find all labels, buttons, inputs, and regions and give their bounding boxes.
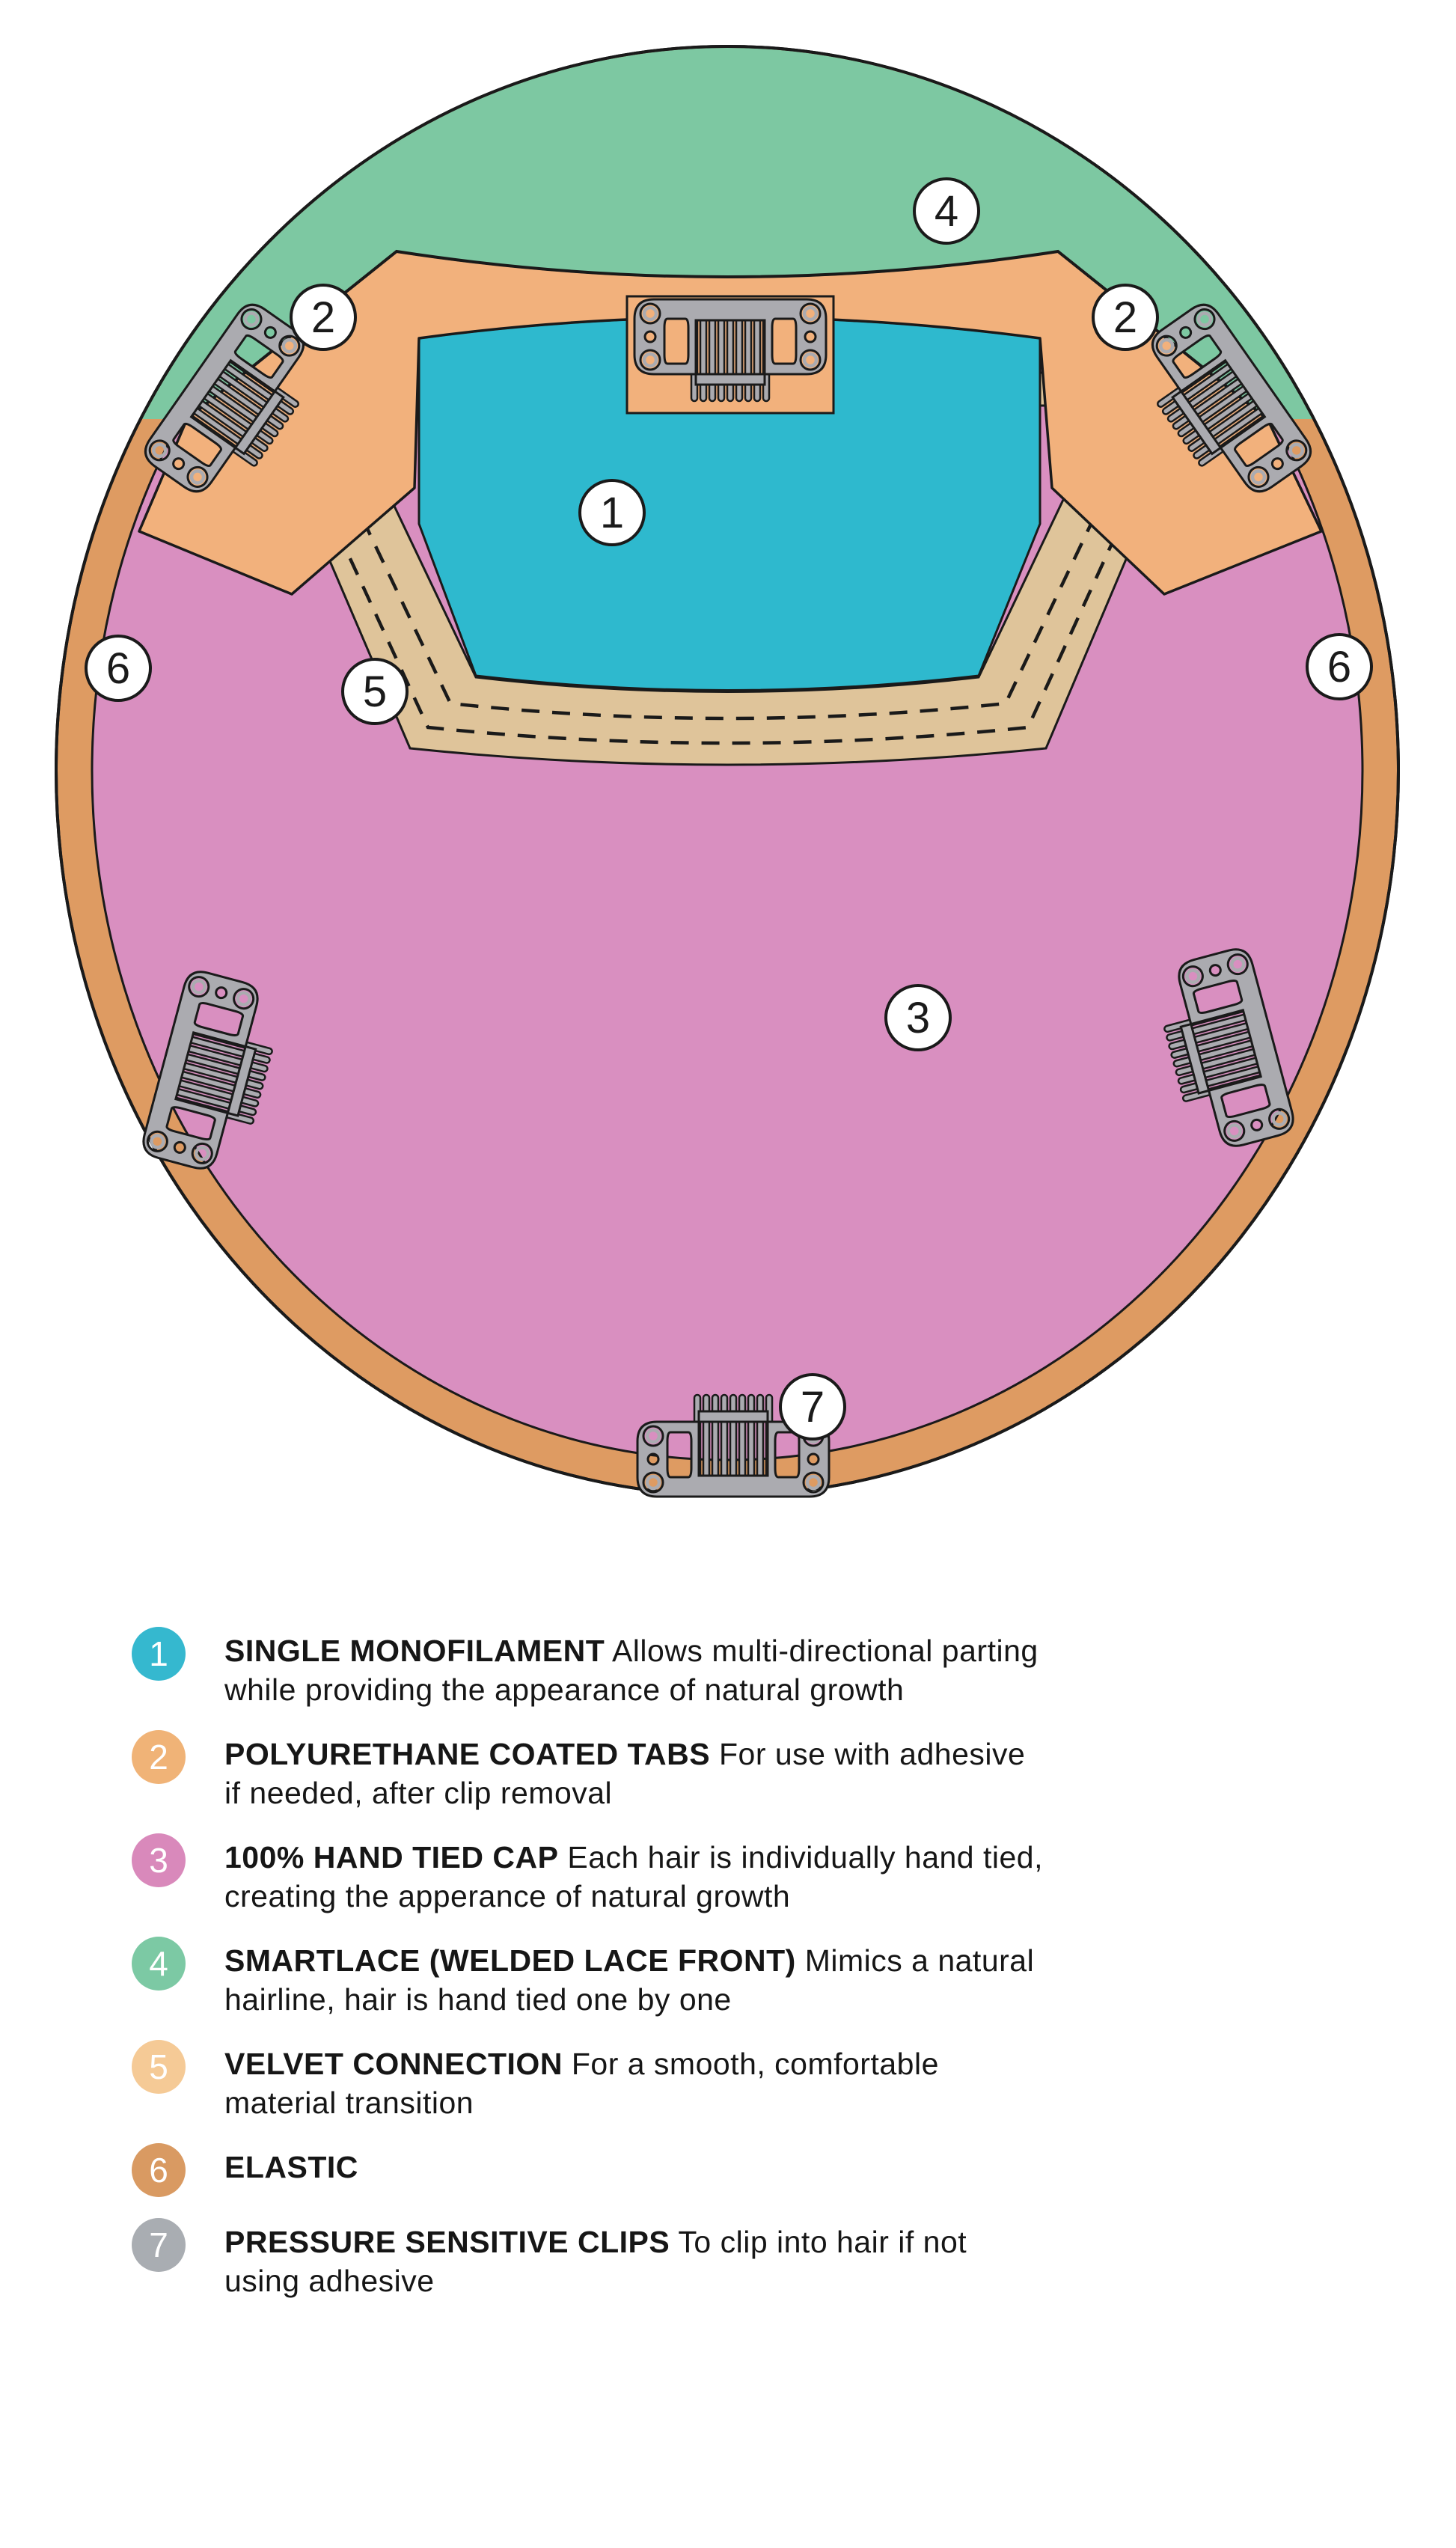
legend-text-2: POLYURETHANE COATED TABS For use with ad…: [224, 1735, 1025, 1812]
svg-text:2: 2: [311, 293, 335, 342]
legend: 1 SINGLE MONOFILAMENT Allows multi-direc…: [0, 1542, 1456, 2300]
callout-2-right: 2: [1093, 285, 1157, 349]
svg-text:5: 5: [363, 667, 387, 716]
svg-text:3: 3: [906, 994, 930, 1042]
legend-desc-7: To clip into hair if not: [678, 2225, 967, 2259]
callout-6-right: 6: [1307, 635, 1371, 699]
svg-text:7: 7: [801, 1383, 825, 1432]
legend-item-5: 5 VELVET CONNECTION For a smooth, comfor…: [132, 2044, 1456, 2122]
legend-term-4: SMARTLACE (WELDED LACE FRONT): [224, 1943, 796, 1978]
legend-desc-3: Each hair is individually hand tied,: [567, 1840, 1043, 1875]
legend-term-2: POLYURETHANE COATED TABS: [224, 1737, 710, 1771]
page: { "colors": { "monofilament": "#2EB9CE",…: [0, 0, 1456, 2548]
legend-term-7: PRESSURE SENSITIVE CLIPS: [224, 2225, 670, 2259]
legend-text-5: VELVET CONNECTION For a smooth, comforta…: [224, 2044, 939, 2122]
legend-badge-1: 1: [132, 1627, 186, 1681]
legend-badge-7: 7: [132, 2218, 186, 2272]
legend-badge-6: 6: [132, 2143, 186, 2197]
svg-text:2: 2: [1113, 293, 1137, 342]
legend-term-3: 100% HAND TIED CAP: [224, 1840, 558, 1875]
legend-desc2-2: if needed, after clip removal: [224, 1773, 1025, 1812]
legend-desc-5: For a smooth, comfortable: [572, 2047, 939, 2081]
legend-badge-5: 5: [132, 2040, 186, 2094]
callout-3: 3: [886, 986, 950, 1050]
legend-desc2-7: using adhesive: [224, 2261, 967, 2300]
legend-desc-1: Allows multi-directional parting: [612, 1634, 1039, 1668]
legend-item-1: 1 SINGLE MONOFILAMENT Allows multi-direc…: [132, 1631, 1456, 1709]
callout-1: 1: [580, 480, 644, 545]
legend-term-5: VELVET CONNECTION: [224, 2047, 563, 2081]
legend-text-4: SMARTLACE (WELDED LACE FRONT) Mimics a n…: [224, 1941, 1034, 2019]
legend-desc2-5: material transition: [224, 2083, 939, 2122]
legend-text-1: SINGLE MONOFILAMENT Allows multi-directi…: [224, 1631, 1039, 1709]
legend-item-3: 3 100% HAND TIED CAP Each hair is indivi…: [132, 1838, 1456, 1916]
callout-7: 7: [780, 1375, 845, 1439]
legend-item-2: 2 POLYURETHANE COATED TABS For use with …: [132, 1735, 1456, 1812]
callout-5: 5: [343, 659, 407, 724]
svg-text:4: 4: [935, 187, 958, 236]
wig-cap-diagram: 4 2 2 1 5 6 6 3 7: [0, 0, 1456, 1542]
legend-desc2-3: creating the apperance of natural growth: [224, 1877, 1043, 1916]
legend-text-7: PRESSURE SENSITIVE CLIPS To clip into ha…: [224, 2222, 967, 2300]
legend-item-4: 4 SMARTLACE (WELDED LACE FRONT) Mimics a…: [132, 1941, 1456, 2019]
legend-item-7: 7 PRESSURE SENSITIVE CLIPS To clip into …: [132, 2222, 1456, 2300]
legend-badge-2: 2: [132, 1730, 186, 1784]
legend-term-1: SINGLE MONOFILAMENT: [224, 1634, 605, 1668]
legend-desc2-4: hairline, hair is hand tied one by one: [224, 1980, 1034, 2019]
legend-text-6: ELASTIC: [224, 2148, 358, 2187]
legend-desc2-1: while providing the appearance of natura…: [224, 1670, 1039, 1709]
legend-text-3: 100% HAND TIED CAP Each hair is individu…: [224, 1838, 1043, 1916]
callout-4: 4: [914, 179, 979, 243]
callout-6-left: 6: [86, 636, 150, 700]
legend-badge-4: 4: [132, 1937, 186, 1991]
callout-2-left: 2: [291, 285, 355, 349]
legend-term-6: ELASTIC: [224, 2150, 358, 2184]
svg-text:6: 6: [1327, 643, 1351, 691]
legend-desc-4: Mimics a natural: [805, 1943, 1034, 1978]
legend-desc-2: For use with adhesive: [719, 1737, 1025, 1771]
svg-text:1: 1: [600, 489, 624, 537]
legend-item-6: 6 ELASTIC: [132, 2148, 1456, 2197]
legend-badge-3: 3: [132, 1833, 186, 1887]
svg-text:6: 6: [106, 644, 130, 693]
